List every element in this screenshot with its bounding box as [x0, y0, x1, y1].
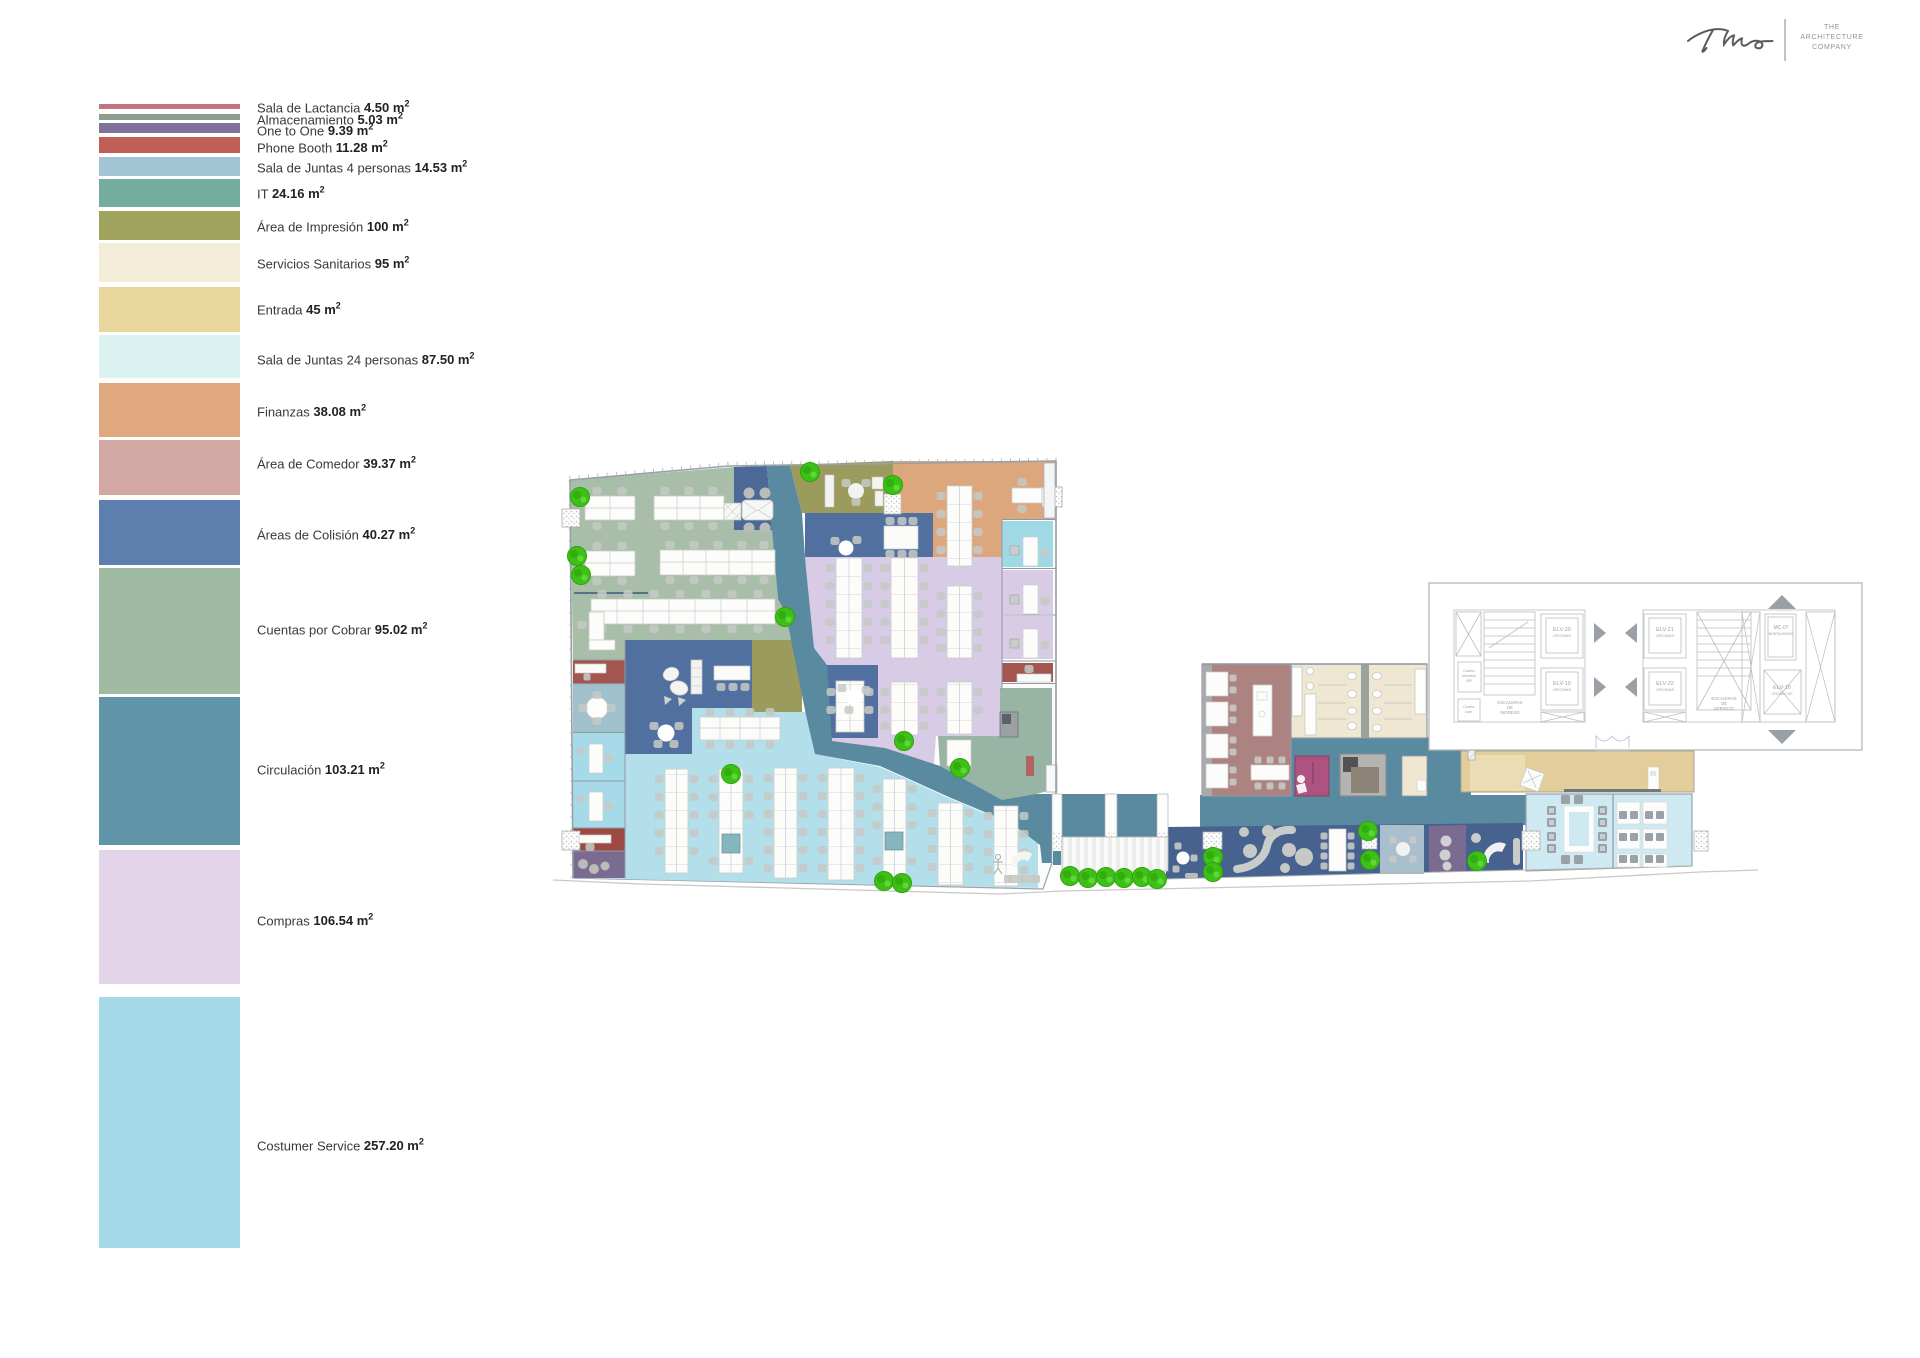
svg-text:ELV-22: ELV-22 [1656, 681, 1674, 687]
svg-text:ELV-21: ELV-21 [1656, 627, 1674, 633]
svg-text:OFICINAS: OFICINAS [1553, 688, 1571, 692]
svg-text:ELV-20: ELV-20 [1553, 627, 1571, 633]
svg-text:MONTACARGAS: MONTACARGAS [1769, 632, 1794, 636]
svg-text:Cuarto: Cuarto [1463, 705, 1474, 709]
svg-text:OFICINAS: OFICINAS [1656, 688, 1674, 692]
svg-text:INGRESO: INGRESO [1500, 710, 1520, 715]
svg-text:eléctrico: eléctrico [1462, 674, 1476, 678]
svg-text:Cuarto: Cuarto [1463, 669, 1474, 673]
svg-text:OFICINAS VIP: OFICINAS VIP [1771, 692, 1792, 696]
svg-text:OFICINAS: OFICINAS [1553, 634, 1571, 638]
svg-text:MC-07: MC-07 [1773, 625, 1788, 631]
svg-text:ISP: ISP [1466, 679, 1473, 683]
svg-text:ELV-10: ELV-10 [1553, 681, 1571, 687]
svg-text:OFICINAS: OFICINAS [1656, 634, 1674, 638]
svg-text:SERVICIO: SERVICIO [1714, 706, 1735, 711]
svg-text:ELV-16: ELV-16 [1773, 685, 1791, 691]
svg-text:com.: com. [1465, 710, 1473, 714]
